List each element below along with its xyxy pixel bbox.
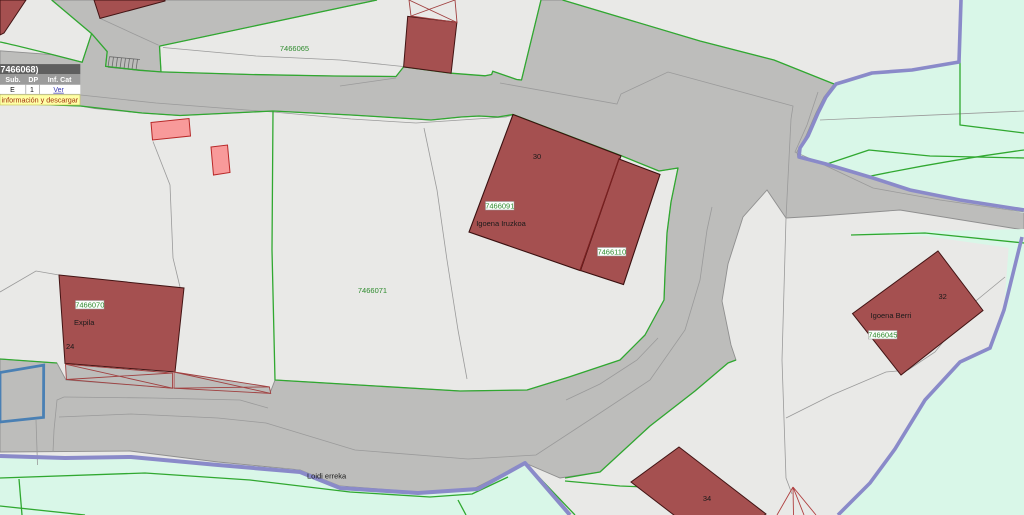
svg-text:7466045: 7466045 bbox=[868, 331, 897, 340]
svg-text:34: 34 bbox=[703, 494, 711, 503]
svg-text:7466071: 7466071 bbox=[358, 286, 387, 295]
svg-text:7466068): 7466068) bbox=[1, 64, 39, 74]
svg-text:30: 30 bbox=[533, 152, 541, 161]
svg-text:Sub.: Sub. bbox=[5, 77, 20, 84]
svg-text:información y descargar: información y descargar bbox=[2, 95, 79, 104]
svg-text:Expila: Expila bbox=[74, 318, 95, 327]
svg-text:24: 24 bbox=[66, 342, 74, 351]
svg-text:32: 32 bbox=[939, 292, 947, 301]
svg-text:7466091: 7466091 bbox=[485, 202, 514, 211]
svg-text:7466070: 7466070 bbox=[75, 301, 104, 310]
svg-text:E: E bbox=[10, 87, 15, 94]
svg-text:Inf. Cat: Inf. Cat bbox=[48, 77, 72, 84]
svg-text:Loidi erreka: Loidi erreka bbox=[307, 472, 347, 481]
svg-text:7466110: 7466110 bbox=[597, 248, 626, 257]
svg-text:Igoena Berri: Igoena Berri bbox=[871, 311, 912, 320]
svg-text:DP: DP bbox=[28, 77, 38, 84]
svg-text:7466065: 7466065 bbox=[280, 44, 309, 53]
svg-text:1: 1 bbox=[30, 87, 34, 94]
svg-text:Ver: Ver bbox=[53, 87, 64, 94]
svg-text:Igoena Iruzkoa: Igoena Iruzkoa bbox=[476, 219, 526, 228]
